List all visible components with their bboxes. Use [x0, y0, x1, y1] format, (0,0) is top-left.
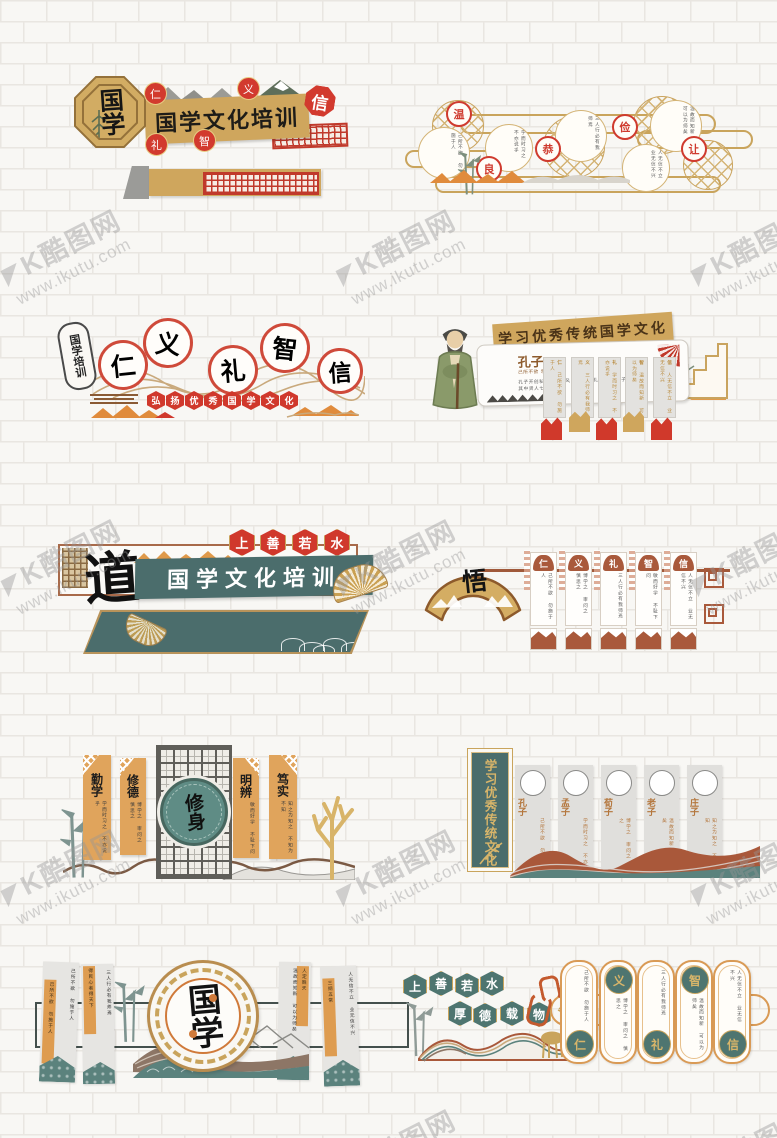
design-xiushen-lattice: 勤学 学而时习之 不亦说乎 修德 博学之 审问之 慎思之 明辨 敏而好学 不耻下… [58, 742, 360, 882]
virtue-circle: 礼 [145, 133, 168, 156]
capsule-virtue-circle: 义 [605, 966, 633, 994]
motto-hex: 善 [429, 971, 453, 996]
side-label: 国学培训 [65, 333, 88, 379]
kutu-logo-icon [336, 883, 360, 907]
scroll-panel: 信 人无信不立 业无信不兴 [670, 552, 697, 626]
lattice-ornament [203, 172, 319, 195]
virtue-badge: 俭 [612, 114, 638, 140]
scroll-panel: 礼 三人行必有我师焉 [600, 552, 627, 626]
virtue-badge: 温 [446, 101, 472, 127]
scroll-panel: 义 博学之 审问之 慎思之 [565, 552, 592, 626]
cloud-scallop-icon [341, 642, 367, 655]
banner-title: 国学文化培训 [167, 559, 342, 594]
scroll-foot [670, 628, 697, 650]
text-panel: 己所不欲 勿施于人 己所不欲 勿施于人 [39, 961, 79, 1082]
hanging-strip: 信 人无信不立 业无信不兴 [653, 357, 676, 418]
virtue-capsule: 人无信不立 业无信不兴 信 [713, 960, 751, 1064]
seal-dot [189, 1030, 197, 1038]
capsule-virtue-circle: 智 [681, 966, 709, 994]
side-capsule: 国学培训 [55, 320, 98, 393]
banner-title: 国学文化培训 [154, 100, 299, 138]
motto-hex: 若 [455, 973, 479, 998]
shelf-bar [149, 169, 321, 196]
tag-hole [649, 770, 675, 796]
quote-circle: 三人行必有我师焉 [555, 110, 607, 162]
confucius-figure [429, 324, 481, 412]
hanging-strip: 礼 学而时习之 不亦说乎 [598, 357, 621, 418]
scroll-foot [530, 628, 557, 650]
design-hang-tags: 学习优秀传统文化 孔子 己所不欲 勿施于人 孟子 学而时习之 不亦说乎 荀子 博… [455, 742, 760, 880]
scroll-icon [88, 392, 140, 404]
hanging-strip: 仁 己所不欲 勿施于人 [543, 357, 566, 418]
tag-hole [692, 770, 718, 796]
capsule-virtue-circle: 信 [719, 1030, 747, 1058]
virtue-circle: 义 [237, 77, 260, 100]
coral-branch-icon [304, 786, 359, 880]
xiushen-medallion: 修身 [160, 778, 228, 846]
wave-pendant [651, 416, 672, 440]
scroll-foot [600, 628, 627, 650]
medallion-text: 国学 [176, 981, 230, 1051]
design-guoxue-medallion: 己所不欲 勿施于人 己所不欲 勿施于人 得民心者得天下 三人行必有我师焉 人定胜… [35, 952, 407, 1108]
title-banner: 学习优秀传统文化 [467, 748, 513, 872]
panel-hill [323, 1059, 360, 1086]
design-wu-fan-scrolls: 悟 仁 己所不欲 勿施于人 义 博学之 审问之 慎思之 礼 三人行必有我师焉 智… [418, 548, 750, 656]
meander-ornament-icon [704, 568, 724, 588]
wave-pendant [541, 416, 562, 440]
tag-hole [563, 770, 589, 796]
virtue-banner: 明辨 敏而好学 不耻下问 [233, 758, 259, 858]
scroll-foot [565, 628, 592, 650]
kutu-logo-icon [691, 883, 715, 907]
seal-dot [209, 994, 217, 1002]
motto-hex: 载 [500, 1001, 524, 1026]
virtue-banner: 修德 博学之 审问之 慎思之 [120, 758, 146, 855]
virtue-circle: 智 [193, 129, 216, 152]
hanging-strip: 智 温故而知新 可以为师矣 [625, 357, 648, 418]
design-guoxue-banner: 国学文化培训 国学 仁 义 礼 智 信 [60, 62, 350, 204]
tag-hole [520, 770, 546, 796]
virtue-badge: 恭 [535, 136, 561, 162]
wave-pendant [596, 416, 617, 440]
design-dao-banner: 道 上 善 若 水 国学文化培训 [58, 526, 376, 658]
scroll-panel: 智 敏而好学 不耻下问 [635, 552, 662, 626]
design-wu-chang-circles: 己所不欲 勿施于人 学而时习之 不亦说乎 三人行必有我师焉 温故而知新 可以为师… [405, 88, 755, 206]
mountain-wave-icon [510, 834, 760, 878]
wu-character: 悟 [460, 561, 489, 599]
kutu-logo-icon [1, 573, 25, 597]
lattice-corner [281, 755, 297, 775]
design-five-virtue-circles: 国学培训 仁 义 礼 智 信 弘 扬 优 秀 国 学 文 化 [55, 318, 365, 422]
fan-icon [120, 612, 168, 652]
meander-ornament-icon [704, 604, 724, 624]
kutu-logo-icon [1, 883, 25, 907]
virtue-capsule: 三人行必有我师焉 礼 [637, 960, 675, 1064]
main-banner: 国学文化培训 [144, 93, 310, 144]
motto-hex: 上 [403, 974, 427, 999]
culture-wall-template-sheet: K酷图网www.ikutu.com K酷图网www.ikutu.com K酷图网… [0, 0, 777, 1138]
medallion-text: 修身 [179, 792, 210, 833]
watermark: K酷图网www.ikutu.com [644, 1078, 777, 1138]
cloud-scallop-icon [313, 645, 335, 656]
virtue-badge: 让 [681, 136, 707, 162]
kutu-logo-icon [1, 263, 25, 287]
virtue-capsule: 义 博学之 审问之 慎思之 [599, 960, 637, 1064]
mountain-zigzag-icon [91, 404, 359, 420]
badge-text: 国学 [91, 87, 129, 137]
lower-board [83, 610, 369, 654]
virtue-capsule: 智 温故而知新 可以为师矣 [675, 960, 713, 1064]
mountain-zigzag-icon [430, 168, 630, 184]
scroll-panel: 仁 己所不欲 勿施于人 [530, 552, 557, 626]
scroll-foot [635, 628, 662, 650]
plum-branch-icon [476, 839, 506, 865]
design-hex-capsules: 上 善 若 水 厚 德 载 物 己所不欲 勿施于人 [400, 952, 772, 1067]
text-panel: 三纲五常 人无信不立 业无信不兴 [320, 965, 360, 1086]
kutu-logo-icon [336, 263, 360, 287]
kutu-logo-icon [691, 263, 715, 287]
motto-hex: 水 [480, 971, 504, 996]
shelf-end-block [123, 166, 149, 199]
design-confucius-wall: 学习优秀传统国学文化 孔子 己所不欲 勿施于人 孔子开创私人讲学之风 倡导仁义礼… [425, 318, 755, 440]
panel-hill [83, 1062, 115, 1085]
guoxue-medallion: 国学 [147, 960, 259, 1072]
virtue-banner: 勤学 学而时习之 不亦说乎 [83, 755, 111, 860]
motto-hex: 厚 [448, 1001, 472, 1026]
zigzag-border-icon [487, 392, 551, 403]
tag-hole [606, 770, 632, 796]
dao-character: 道 [81, 532, 143, 617]
capsule-virtue-circle: 礼 [643, 1030, 671, 1058]
virtue-banner: 笃实 知之为知之 不知为不知 [269, 755, 297, 859]
lattice-corner [83, 755, 99, 775]
text-panel: 得民心者得天下 三人行必有我师焉 [81, 964, 115, 1085]
virtue-capsule: 己所不欲 勿施于人 仁 [560, 960, 598, 1064]
guoxue-octagon-badge: 国学 [74, 76, 146, 148]
hanging-strip: 义 三人行必有我师焉 [571, 357, 594, 418]
capsule-virtue-circle: 仁 [566, 1030, 594, 1058]
virtue-circle: 仁 [144, 82, 167, 105]
